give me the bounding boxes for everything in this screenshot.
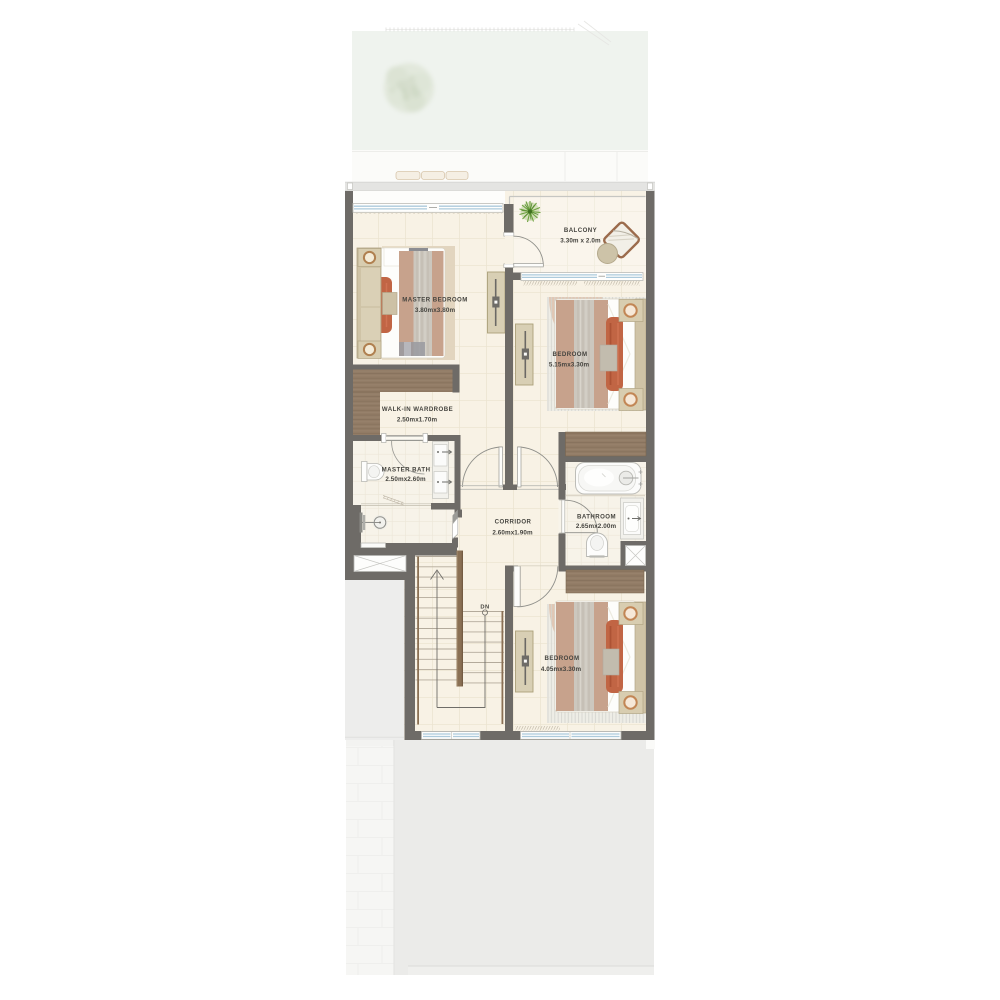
svg-text:DN: DN [480,605,489,611]
svg-text:2.65mx2.00m: 2.65mx2.00m [576,523,617,530]
svg-text:3.30m x 2.0m: 3.30m x 2.0m [560,238,601,245]
svg-text:CORRIDOR: CORRIDOR [495,519,532,526]
svg-text:MASTER BEDROOM: MASTER BEDROOM [402,297,468,304]
svg-text:MASTER BATH: MASTER BATH [382,467,431,474]
svg-text:BALCONY: BALCONY [564,227,597,234]
svg-text:2.50mx1.70m: 2.50mx1.70m [397,417,438,424]
svg-text:BATHROOM: BATHROOM [577,514,616,521]
svg-text:4.05mx3.30m: 4.05mx3.30m [541,666,582,673]
svg-text:2.50mx2.60m: 2.50mx2.60m [385,476,426,483]
svg-text:2.60mx1.90m: 2.60mx1.90m [492,530,533,537]
svg-text:BEDROOM: BEDROOM [553,351,588,358]
svg-text:5.15mx3.30m: 5.15mx3.30m [549,362,590,369]
svg-text:WALK-IN WARDROBE: WALK-IN WARDROBE [382,406,453,413]
svg-text:BEDROOM: BEDROOM [545,655,580,662]
svg-text:3.80mx3.80m: 3.80mx3.80m [415,307,456,314]
